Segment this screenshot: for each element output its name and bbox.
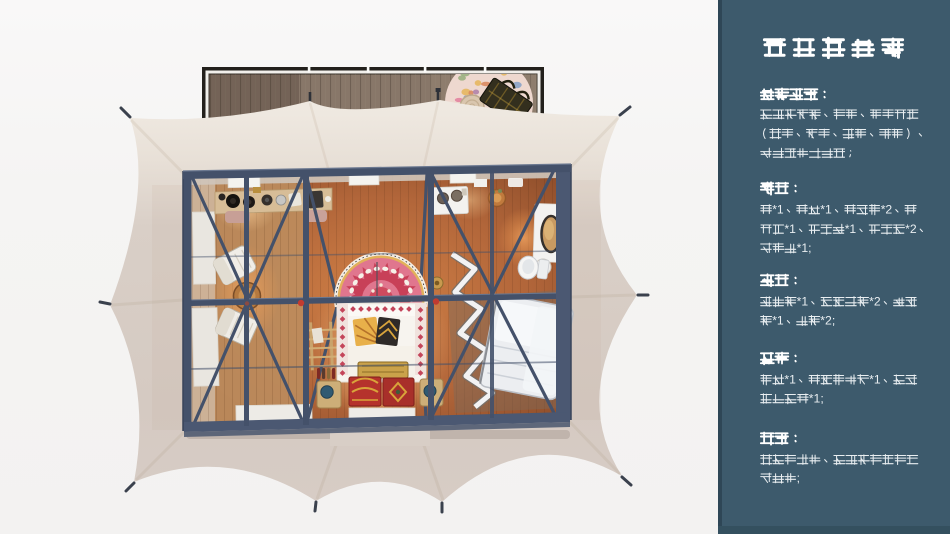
svg-text:;: ; (797, 471, 800, 485)
svg-text:*1: *1 (797, 295, 809, 309)
svg-text:*1: *1 (772, 203, 784, 217)
svg-text:*2: *2 (905, 222, 917, 236)
svg-text:*1: *1 (784, 373, 796, 387)
svg-text:*1;: *1; (809, 392, 824, 406)
svg-text:*1: *1 (869, 373, 881, 387)
svg-text:*2: *2 (869, 295, 881, 309)
svg-text:*1: *1 (784, 222, 796, 236)
svg-text:*1;: *1; (797, 241, 812, 255)
svg-text:*2: *2 (881, 203, 893, 217)
svg-text:*2;: *2; (820, 314, 835, 328)
svg-text:*1: *1 (772, 314, 784, 328)
svg-text:*1: *1 (820, 203, 832, 217)
svg-text:*1: *1 (845, 222, 857, 236)
